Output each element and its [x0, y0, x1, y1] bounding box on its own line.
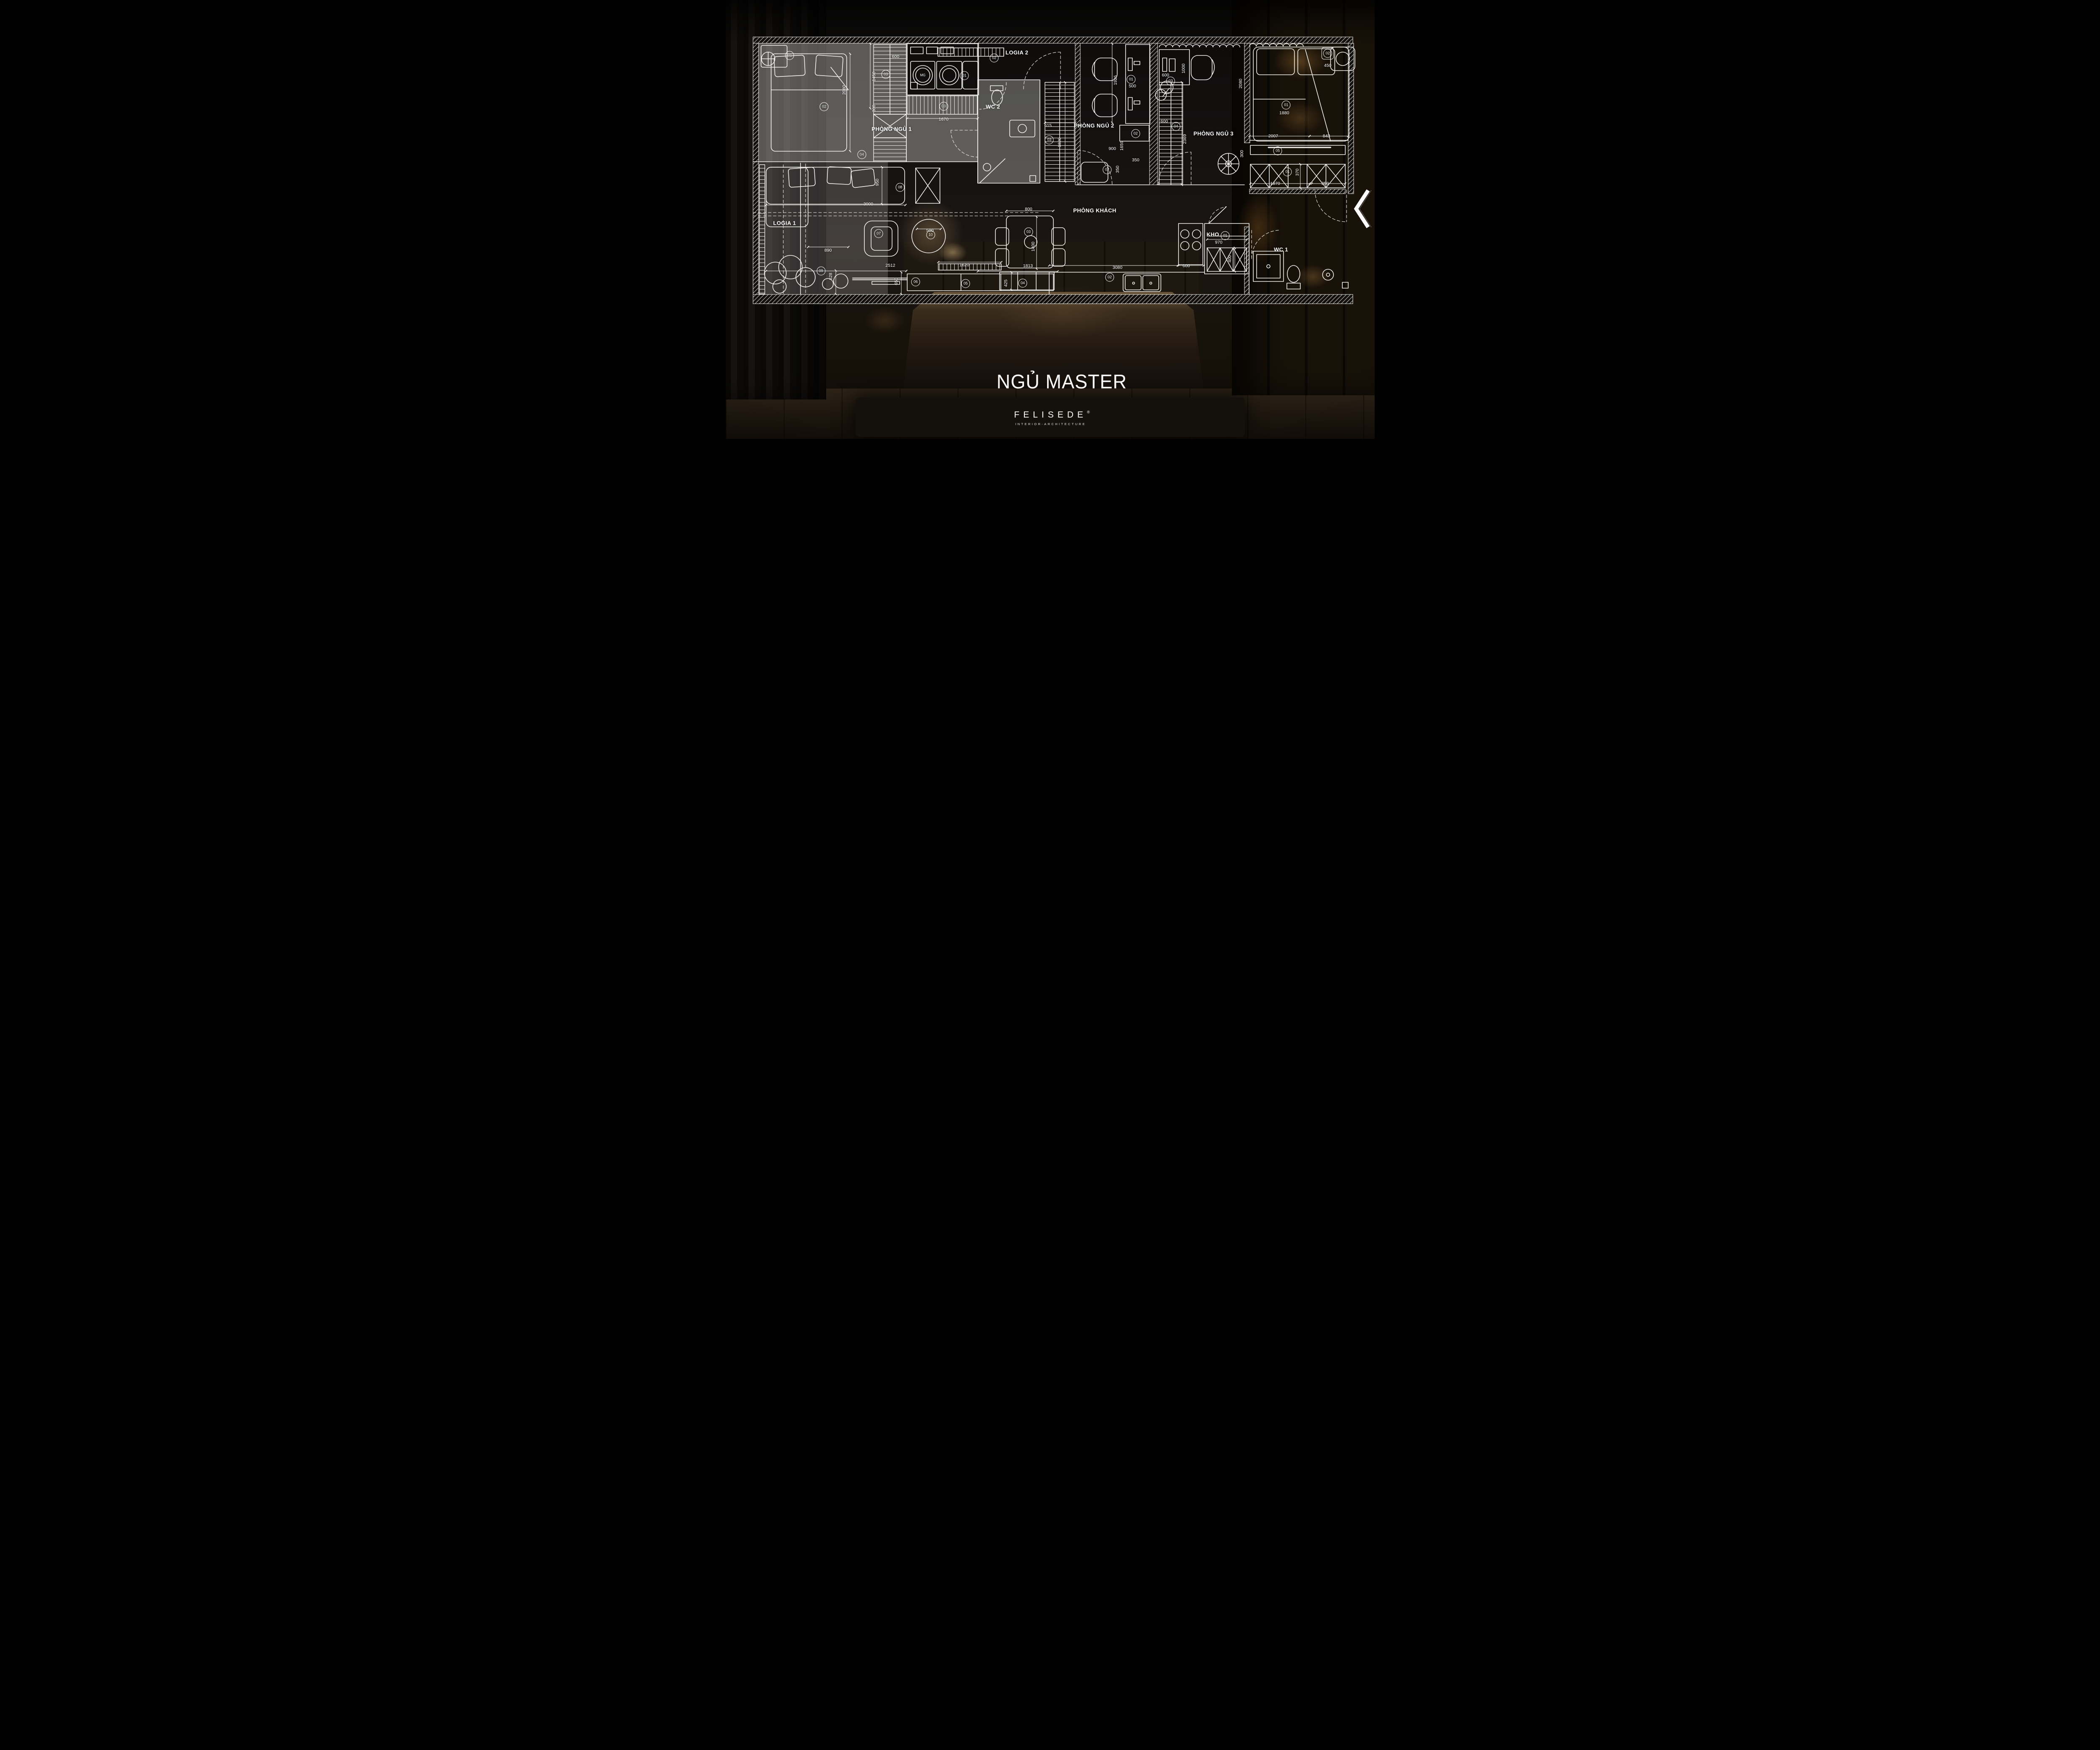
dimension-label: 600	[1183, 263, 1190, 268]
dimension-label: 300	[1239, 150, 1244, 158]
room-label: PHÒNG NGỦ 2	[1074, 122, 1114, 129]
dimension-label: 890	[824, 248, 832, 253]
dimension-label: 350	[1115, 166, 1120, 173]
room-label: LOGIA 1	[773, 220, 796, 226]
appliance-label: MG	[920, 73, 926, 77]
plan-marker: 08	[896, 183, 905, 192]
dimension-label: 843	[1323, 134, 1330, 139]
plan-marker: 01	[785, 51, 794, 60]
dimension-label: 628	[828, 273, 833, 281]
dimension-label: 3000	[864, 202, 873, 207]
registered-mark: ®	[1087, 410, 1090, 414]
plan-marker: 06	[911, 277, 920, 286]
plan-marker: 02	[1131, 129, 1140, 138]
plan-marker: 03	[939, 102, 948, 110]
plan-marker: 02	[990, 53, 999, 62]
room-label: WC 2	[986, 103, 1000, 110]
plan-marker: 01	[1127, 75, 1136, 84]
plan-marker: 01	[1282, 100, 1291, 109]
plan-marker: 05	[961, 279, 970, 288]
plan-marker: 07	[874, 229, 883, 238]
dimension-label: 1813	[1023, 263, 1033, 268]
plan-marker: 04	[857, 150, 866, 159]
room-label: LOGIA 2	[1005, 50, 1028, 56]
room-label: WC 1	[1274, 246, 1288, 252]
dimension-label: 3080	[1113, 265, 1122, 270]
dimension-label: 850	[1321, 181, 1329, 186]
dimension-label: 400	[1227, 255, 1232, 263]
plan-marker: 02	[1322, 47, 1334, 60]
dimension-label: 2512	[885, 263, 895, 268]
dimension-label: 2007	[1268, 134, 1278, 139]
brand-name: FELISEDE	[1010, 410, 1087, 420]
dimension-label: 300	[871, 105, 877, 112]
dimension-label: 2080	[1238, 79, 1243, 88]
plan-marker: 01	[1283, 167, 1292, 176]
dimension-label: 1870	[1270, 181, 1280, 186]
plan-marker: 04	[1171, 122, 1180, 131]
previous-slide-button[interactable]	[1353, 189, 1373, 228]
dimension-label: 500	[1129, 84, 1136, 89]
dimension-label: 950	[875, 179, 880, 186]
plan-marker: 09	[816, 266, 825, 275]
dimension-label: 1880	[1279, 110, 1289, 116]
dimension-label: 1400	[1031, 242, 1036, 252]
dimension-label: 600	[1162, 73, 1169, 78]
dimension-label: 600	[892, 54, 900, 59]
plan-marker: 02	[1105, 273, 1114, 282]
scene: PHÒNG NGỦ 1LOGIA 2WC 2PHÒNG NGỦ 2PHÒNG N…	[726, 0, 1375, 439]
dimension-label: 1620	[959, 263, 969, 268]
dimension-label: 1926	[1113, 76, 1118, 85]
dimension-label: 900	[1109, 146, 1116, 151]
dimension-label: 2080	[842, 85, 847, 95]
plan-marker: 10	[926, 231, 935, 239]
dimension-label: 970	[1215, 240, 1223, 245]
room-label: PHÒNG NGỦ 1	[871, 126, 911, 132]
room-label: KHO	[1207, 231, 1219, 238]
dimension-label: 600	[1160, 119, 1168, 124]
room-label: PHÒNG NGỦ 3	[1194, 130, 1234, 137]
room-label: PHÒNG KHÁCH	[1073, 207, 1116, 213]
brand-logo: FELISEDE® INTERIOR-ARCHITECTURE	[1010, 410, 1089, 426]
dimension-label: 800	[1025, 207, 1032, 212]
dimension-label: 1450	[871, 71, 877, 81]
dimension-label: 650	[894, 278, 899, 285]
plan-marker: 05	[1273, 147, 1282, 155]
dimension-label: 615	[1045, 123, 1052, 128]
chevron-left-icon	[1353, 189, 1373, 228]
dimension-label: 1820	[1057, 137, 1062, 147]
dimension-label: 370	[1295, 168, 1300, 176]
plan-marker: 02	[1102, 166, 1111, 174]
page-title: NGỦ MASTER	[997, 370, 1127, 393]
plan-marker: 03	[1166, 77, 1175, 86]
dimension-label: 450	[1324, 63, 1331, 68]
plan-marker: 01	[1221, 231, 1230, 240]
plan-marker: 03	[1024, 227, 1033, 236]
plan-marker: 04	[1018, 279, 1027, 288]
dimension-label: 1659	[1119, 141, 1124, 150]
dimension-label: 2369	[1182, 134, 1187, 144]
plan-marker: 02	[820, 102, 829, 111]
dimension-label: 350	[1132, 158, 1139, 163]
plan-marker: 01	[960, 71, 969, 80]
brand-tagline: INTERIOR-ARCHITECTURE	[1010, 422, 1089, 426]
plan-marker: 03	[882, 70, 890, 79]
dimension-label: 1000	[1181, 63, 1186, 73]
plan-marker: 03	[1045, 136, 1054, 145]
dimension-label: 425	[1003, 279, 1008, 287]
dimension-label: 1670	[939, 117, 948, 122]
